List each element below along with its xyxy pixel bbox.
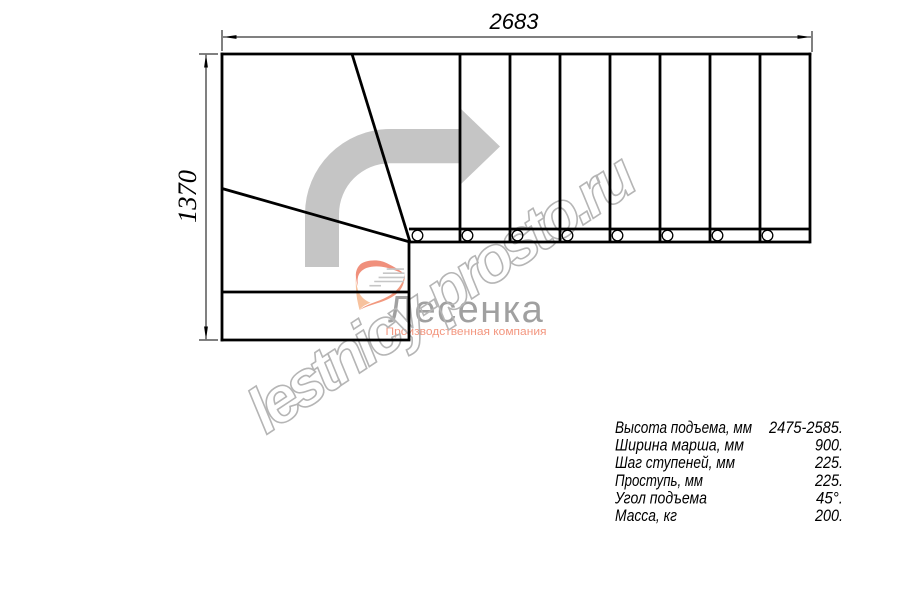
svg-text:225.: 225. <box>814 471 843 490</box>
svg-text:Проступь, мм: Проступь, мм <box>615 471 703 490</box>
svg-text:225.: 225. <box>814 453 843 472</box>
svg-text:1370: 1370 <box>172 170 202 223</box>
svg-text:900.: 900. <box>815 436 843 455</box>
svg-text:200.: 200. <box>814 506 843 525</box>
svg-text:Шаг ступеней, мм: Шаг ступеней, мм <box>615 453 735 472</box>
svg-text:Угол подъема: Угол подъема <box>614 488 707 507</box>
svg-text:Масса, кг: Масса, кг <box>615 506 677 525</box>
svg-text:2475-2585.: 2475-2585. <box>768 418 843 437</box>
svg-text:45°.: 45°. <box>816 488 843 507</box>
svg-text:2683: 2683 <box>489 9 540 34</box>
svg-text:Высота подъема, мм: Высота подъема, мм <box>615 418 752 437</box>
svg-text:Ширина марша, мм: Ширина марша, мм <box>615 436 744 455</box>
